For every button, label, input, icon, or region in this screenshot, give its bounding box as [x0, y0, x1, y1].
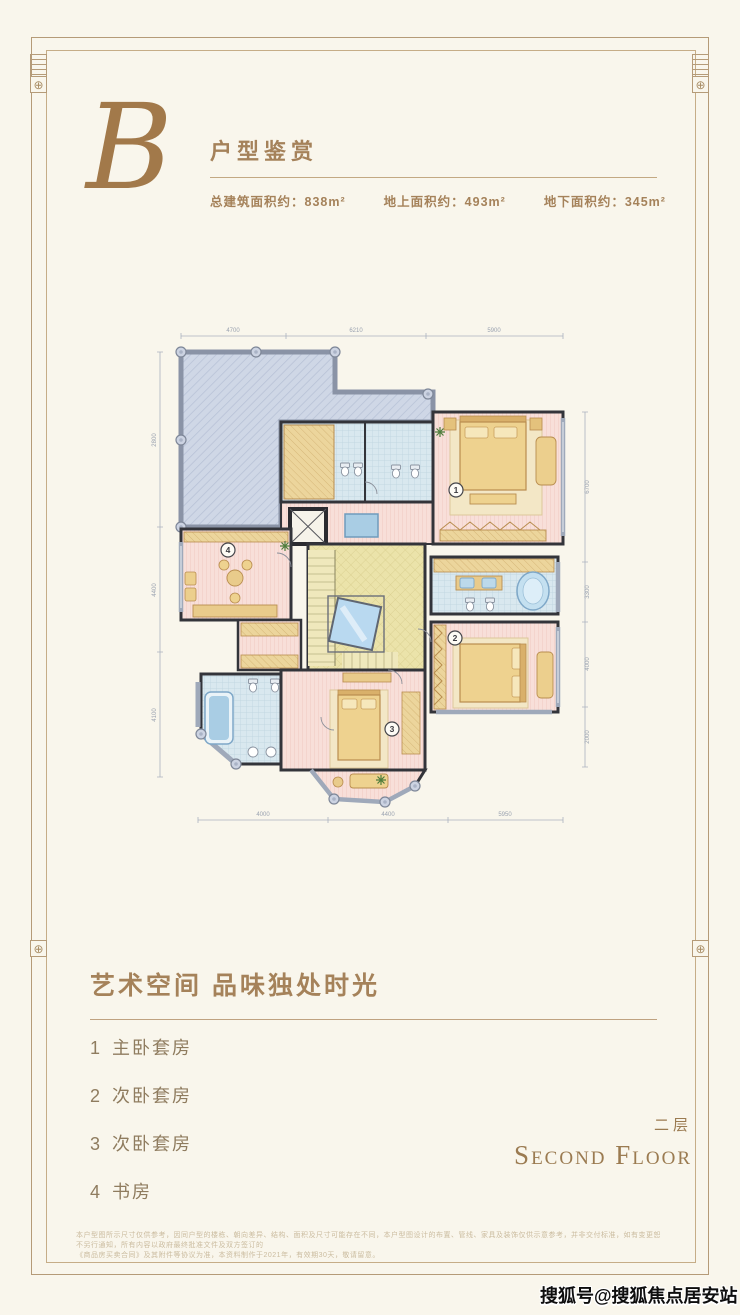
sink — [248, 747, 258, 757]
wardrobe — [402, 692, 420, 754]
legend-item-3: 3次卧套房 — [90, 1130, 192, 1156]
stat-total-area: 总建筑面积约：838m² — [210, 191, 346, 210]
plant-icon — [435, 427, 445, 437]
plant-icon — [280, 541, 290, 551]
master-bathroom — [431, 557, 558, 614]
seal-icon: ⊕ — [30, 940, 47, 957]
bathroom-top — [281, 422, 433, 502]
room-study: 4 — [181, 529, 291, 620]
disclaimer-line-1: 本户型图所示尺寸仅供参考，因同户型的楼栋、朝向差异、结构、面积及尺寸可能存在不同… — [76, 1231, 664, 1251]
frame-ornament-top-right: ⊕ — [692, 54, 709, 93]
watermark: 搜狐号@搜狐焦点居安站 — [540, 1282, 738, 1308]
bed — [460, 644, 520, 702]
closet — [434, 559, 554, 572]
legend-item-4: 4书房 — [90, 1178, 192, 1204]
stat-label: 总建筑面积约： — [210, 195, 305, 209]
dim-top-1: 4700 — [226, 328, 240, 334]
dim-right-1: 6700 — [585, 480, 591, 494]
dim-right-4: 2000 — [585, 730, 591, 744]
walk-in-closet — [238, 620, 301, 670]
legend-item-2: 2次卧套房 — [90, 1082, 192, 1108]
page-title: 户型鉴赏 — [210, 134, 657, 166]
legend-item-1: 1主卧套房 — [90, 1034, 192, 1060]
section-heading: 艺术空间 品味独处时光 — [90, 966, 657, 1020]
frame-ornament-mid-left: ⊕ — [30, 940, 47, 957]
toilet-icon — [354, 463, 363, 476]
room-marker-4-label: 4 — [226, 545, 231, 555]
room-marker-2-label: 2 — [453, 633, 458, 643]
dim-bottom-2: 4400 — [381, 812, 395, 818]
disclaimer-line-2: 《商品房买卖合同》及其附件等协议为准，本资料制作于2021年，有效期30天，敬请… — [76, 1251, 664, 1261]
legend-label: 主卧套房 — [112, 1038, 192, 1058]
room-marker-1-label: 1 — [454, 485, 459, 495]
floor-label-cn: 二层 — [514, 1114, 692, 1135]
title-block: 户型鉴赏 总建筑面积约：838m² 地上面积约：493m² 地下面积约：345m… — [210, 134, 657, 210]
brochure-page: ⊕ ⊕ ⊕ ⊕ B 户型鉴赏 总建筑面积约：838m² 地上面积约：493m² … — [0, 0, 740, 1315]
floor-label-en: Second Floor — [514, 1140, 692, 1171]
legend-num: 1 — [90, 1038, 102, 1058]
ladder-ornament — [692, 54, 709, 76]
stairs — [308, 550, 335, 666]
dim-top-3: 5900 — [487, 328, 501, 334]
table — [227, 570, 243, 586]
plant-icon — [376, 775, 386, 785]
dim-left-3: 4100 — [152, 708, 158, 722]
stat-below-ground-area: 地下面积约：345m² — [544, 191, 666, 210]
dim-bottom-1: 4000 — [256, 812, 270, 818]
room-legend: 1主卧套房 2次卧套房 3次卧套房 4书房 — [90, 1034, 192, 1226]
chaise — [536, 437, 556, 485]
stat-value: 838m² — [305, 195, 346, 209]
legend-label: 次卧套房 — [112, 1134, 192, 1154]
stair-hall — [308, 544, 425, 670]
bookshelf — [184, 532, 288, 542]
floor-plan: 4700 6210 5900 2800 4400 4100 6700 3300 … — [138, 322, 608, 832]
dim-left-2: 4400 — [152, 583, 158, 597]
frame-ornament-mid-right: ⊕ — [692, 940, 709, 957]
legend-num: 3 — [90, 1134, 102, 1154]
skylight — [329, 598, 381, 650]
sink — [482, 578, 496, 588]
floor-label: 二层 Second Floor — [514, 1114, 692, 1171]
sink — [460, 578, 474, 588]
legend-label: 书房 — [112, 1182, 152, 1202]
ladder-ornament — [30, 54, 47, 76]
dresser — [343, 673, 391, 682]
stat-label: 地上面积约： — [384, 195, 465, 209]
wardrobe — [440, 530, 546, 541]
dim-bottom-3: 5950 — [498, 812, 512, 818]
room-marker-3-label: 3 — [390, 724, 395, 734]
legend-label: 次卧套房 — [112, 1086, 192, 1106]
basin-counter — [345, 514, 378, 537]
room-second-bedroom: 2 — [431, 622, 558, 712]
room-master-bedroom: 1 — [433, 412, 563, 544]
stat-label: 地下面积约： — [544, 195, 625, 209]
elevator — [290, 509, 326, 544]
bay-window — [311, 770, 425, 807]
room-third-bedroom: 3 — [281, 670, 425, 770]
sink — [266, 747, 276, 757]
stat-value: 345m² — [625, 195, 666, 209]
seal-icon: ⊕ — [30, 76, 47, 93]
dim-right-3: 4000 — [585, 657, 591, 671]
title-divider — [210, 177, 657, 178]
stat-value: 493m² — [465, 195, 506, 209]
dim-top-2: 6210 — [349, 328, 363, 334]
frame-ornament-top-left: ⊕ — [30, 54, 47, 93]
desk — [193, 605, 277, 617]
dim-right-2: 3300 — [585, 585, 591, 599]
seal-icon: ⊕ — [692, 76, 709, 93]
disclaimer: 本户型图所示尺寸仅供参考，因同户型的楼栋、朝向差异、结构、面积及尺寸可能存在不同… — [76, 1231, 664, 1261]
chaise — [537, 652, 553, 698]
monogram-b: B — [86, 88, 173, 206]
seal-icon: ⊕ — [692, 940, 709, 957]
legend-num: 4 — [90, 1182, 102, 1202]
area-stats: 总建筑面积约：838m² 地上面积约：493m² 地下面积约：345m² — [210, 191, 657, 210]
dim-left-1: 2800 — [152, 433, 158, 447]
legend-num: 2 — [90, 1086, 102, 1106]
stat-above-ground-area: 地上面积约：493m² — [384, 191, 506, 210]
